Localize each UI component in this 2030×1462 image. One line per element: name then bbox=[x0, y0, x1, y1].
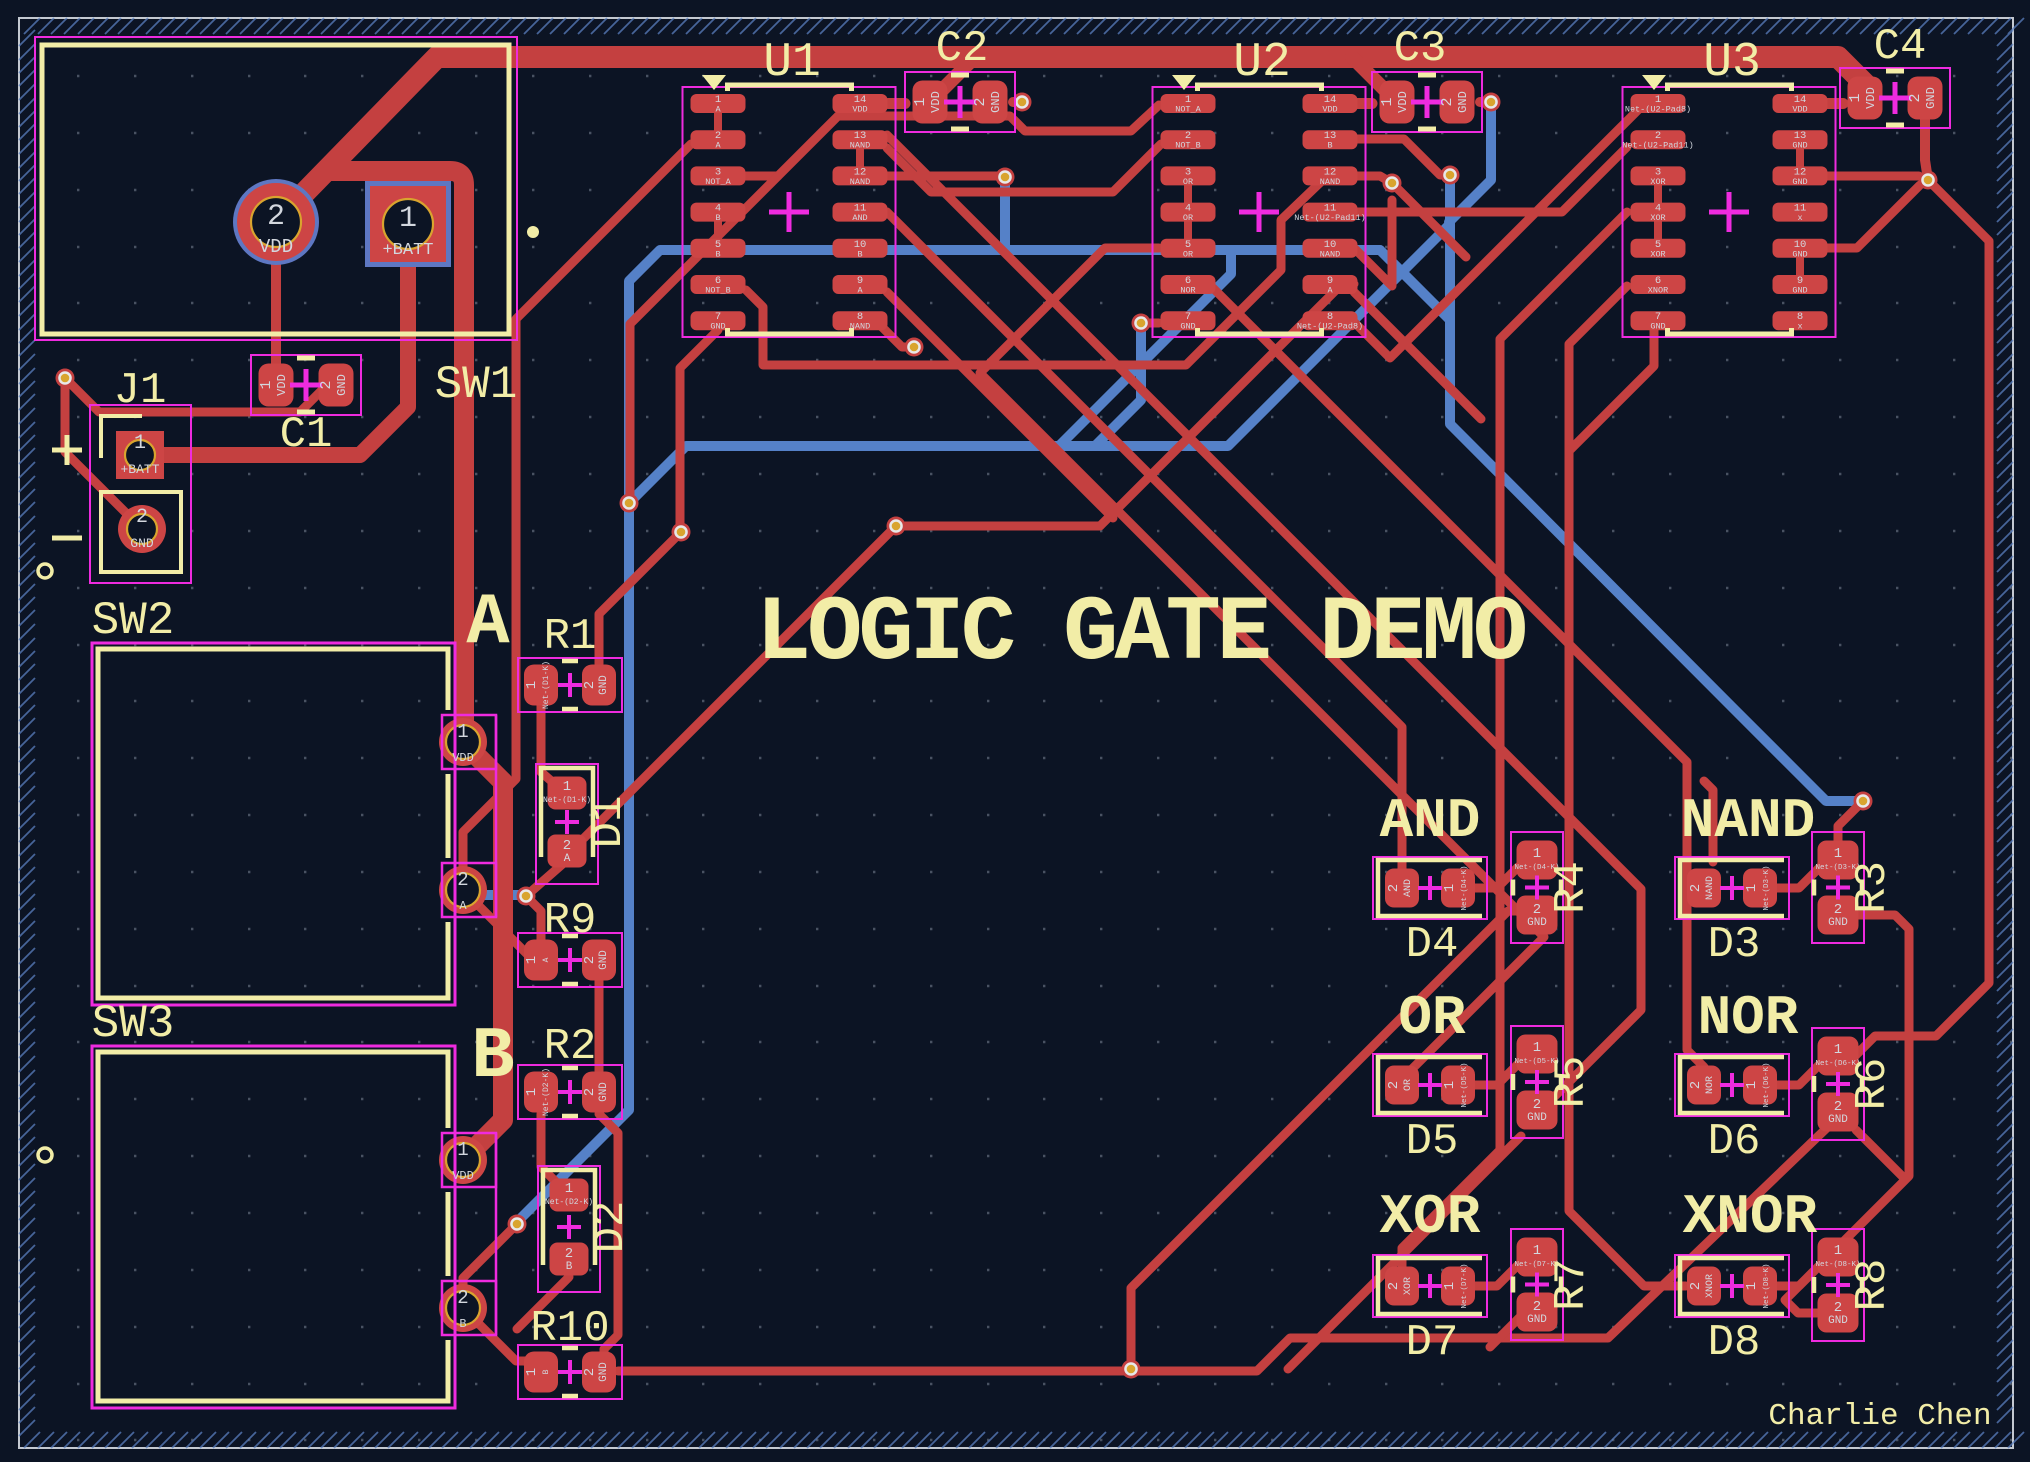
svg-text:VDD: VDD bbox=[1322, 105, 1337, 115]
svg-text:GND: GND bbox=[1527, 1112, 1547, 1124]
svg-text:2: 2 bbox=[267, 200, 285, 234]
svg-text:1: 1 bbox=[1744, 884, 1760, 892]
svg-text:2: 2 bbox=[1386, 1282, 1402, 1290]
svg-text:D6: D6 bbox=[1708, 1117, 1761, 1167]
svg-text:R10: R10 bbox=[530, 1304, 609, 1354]
svg-text:NAND: NAND bbox=[1681, 789, 1815, 853]
svg-text:1: 1 bbox=[1442, 1282, 1458, 1290]
svg-text:Net-(U2-Pad11): Net-(U2-Pad11) bbox=[1622, 141, 1693, 151]
svg-text:1: 1 bbox=[565, 1181, 573, 1197]
svg-text:VDD: VDD bbox=[259, 236, 293, 258]
svg-text:GND: GND bbox=[1792, 286, 1807, 296]
svg-text:2: 2 bbox=[1386, 1081, 1402, 1089]
svg-text:D3: D3 bbox=[1708, 920, 1761, 970]
svg-text:B: B bbox=[471, 1016, 514, 1098]
svg-text:B: B bbox=[566, 1261, 573, 1273]
svg-text:Net-(U2-Pad8): Net-(U2-Pad8) bbox=[1297, 322, 1363, 332]
svg-text:2: 2 bbox=[1834, 902, 1842, 918]
svg-text:1: 1 bbox=[912, 97, 929, 106]
svg-text:XOR: XOR bbox=[1403, 1277, 1414, 1295]
svg-text:C3: C3 bbox=[1394, 24, 1447, 74]
svg-text:XOR: XOR bbox=[1650, 177, 1665, 187]
svg-text:GND: GND bbox=[598, 675, 610, 695]
svg-text:NAND: NAND bbox=[1320, 177, 1340, 187]
svg-text:D8: D8 bbox=[1708, 1318, 1761, 1368]
svg-text:XOR: XOR bbox=[1650, 213, 1665, 223]
svg-text:NAND: NAND bbox=[850, 322, 870, 332]
svg-text:VDD: VDD bbox=[452, 1169, 474, 1183]
svg-text:2: 2 bbox=[1688, 884, 1704, 892]
svg-text:2: 2 bbox=[457, 1287, 468, 1309]
svg-text:1: 1 bbox=[1834, 846, 1842, 862]
svg-text:2: 2 bbox=[1834, 1099, 1842, 1115]
svg-text:1: 1 bbox=[134, 432, 146, 455]
svg-text:VDD: VDD bbox=[852, 105, 867, 115]
svg-text:2: 2 bbox=[1533, 1299, 1541, 1315]
svg-text:1: 1 bbox=[524, 1088, 540, 1096]
svg-text:VDD: VDD bbox=[1792, 105, 1807, 115]
svg-text:GND: GND bbox=[710, 322, 725, 332]
svg-text:D4: D4 bbox=[1406, 920, 1459, 970]
svg-text:2: 2 bbox=[582, 681, 598, 689]
svg-text:2: 2 bbox=[457, 869, 468, 891]
svg-text:GND: GND bbox=[1828, 917, 1848, 929]
svg-text:1: 1 bbox=[1533, 1040, 1541, 1056]
svg-text:NOT_A: NOT_A bbox=[705, 177, 731, 187]
svg-text:2: 2 bbox=[1533, 1097, 1541, 1113]
svg-text:OR: OR bbox=[1183, 249, 1193, 259]
svg-text:GND: GND bbox=[1456, 91, 1470, 113]
svg-text:R5: R5 bbox=[1547, 1056, 1597, 1109]
svg-text:Net-(D3-K): Net-(D3-K) bbox=[1763, 865, 1771, 910]
svg-text:1: 1 bbox=[524, 681, 540, 689]
svg-text:2: 2 bbox=[565, 1246, 573, 1262]
svg-text:R4: R4 bbox=[1547, 861, 1597, 914]
svg-text:VDD: VDD bbox=[1396, 91, 1410, 113]
svg-text:U2: U2 bbox=[1233, 36, 1291, 90]
svg-text:OR: OR bbox=[1403, 1079, 1414, 1091]
svg-text:1: 1 bbox=[258, 380, 275, 389]
svg-text:Net-(D6-K): Net-(D6-K) bbox=[1763, 1062, 1771, 1107]
svg-text:XNOR: XNOR bbox=[1683, 1185, 1818, 1249]
svg-text:2: 2 bbox=[582, 1088, 598, 1096]
svg-text:GND: GND bbox=[1527, 1314, 1547, 1326]
svg-text:VDD: VDD bbox=[452, 751, 474, 765]
svg-text:SW1: SW1 bbox=[435, 359, 518, 411]
svg-text:B: B bbox=[715, 249, 720, 259]
svg-text:+BATT: +BATT bbox=[382, 241, 433, 260]
svg-text:NOR: NOR bbox=[1705, 1076, 1716, 1094]
svg-text:Net-(D5-K): Net-(D5-K) bbox=[1461, 1062, 1469, 1107]
svg-text:2: 2 bbox=[1439, 97, 1456, 106]
svg-text:1: 1 bbox=[1533, 846, 1541, 862]
svg-text:GND: GND bbox=[598, 1362, 610, 1382]
svg-text:2: 2 bbox=[318, 380, 335, 389]
svg-text:GND: GND bbox=[335, 374, 349, 396]
svg-text:R6: R6 bbox=[1848, 1058, 1898, 1111]
svg-text:x: x bbox=[1797, 213, 1802, 223]
svg-text:OR: OR bbox=[1398, 986, 1466, 1050]
svg-text:+BATT: +BATT bbox=[120, 462, 159, 477]
svg-text:GND: GND bbox=[1650, 322, 1665, 332]
svg-text:A: A bbox=[564, 853, 571, 865]
svg-text:1: 1 bbox=[1379, 97, 1396, 106]
svg-text:XNOR: XNOR bbox=[1705, 1274, 1716, 1298]
svg-text:LOGIC GATE DEMO: LOGIC GATE DEMO bbox=[756, 581, 1525, 686]
svg-text:J1: J1 bbox=[114, 366, 167, 416]
svg-text:A: A bbox=[715, 141, 721, 151]
svg-text:VDD: VDD bbox=[929, 91, 943, 113]
svg-text:GND: GND bbox=[989, 91, 1003, 113]
svg-text:U3: U3 bbox=[1703, 36, 1761, 90]
svg-text:1: 1 bbox=[524, 956, 540, 964]
svg-text:NAND: NAND bbox=[1705, 876, 1716, 900]
svg-text:SW2: SW2 bbox=[92, 595, 175, 647]
svg-text:C4: C4 bbox=[1874, 22, 1927, 72]
svg-text:Net-(D7-K): Net-(D7-K) bbox=[1461, 1263, 1469, 1308]
svg-text:1: 1 bbox=[457, 1139, 468, 1161]
svg-text:GND: GND bbox=[1924, 87, 1938, 109]
svg-text:B: B bbox=[542, 1369, 551, 1374]
svg-text:NOT_B: NOT_B bbox=[1175, 141, 1201, 151]
svg-text:R1: R1 bbox=[544, 612, 597, 662]
svg-text:GND: GND bbox=[598, 950, 610, 970]
svg-text:U1: U1 bbox=[763, 36, 821, 90]
svg-text:Net-(U2-Pad8): Net-(U2-Pad8) bbox=[1625, 105, 1691, 115]
svg-text:NOT_A: NOT_A bbox=[1175, 105, 1201, 115]
svg-text:D5: D5 bbox=[1406, 1117, 1459, 1167]
svg-text:R2: R2 bbox=[544, 1022, 597, 1072]
svg-text:VDD: VDD bbox=[275, 374, 289, 396]
svg-text:1: 1 bbox=[457, 721, 468, 743]
svg-text:OR: OR bbox=[1183, 177, 1193, 187]
svg-text:GND: GND bbox=[598, 1082, 610, 1102]
svg-text:1: 1 bbox=[399, 202, 417, 236]
svg-text:GND: GND bbox=[1792, 249, 1807, 259]
svg-text:A: A bbox=[857, 286, 863, 296]
svg-text:NAND: NAND bbox=[850, 141, 870, 151]
svg-text:2: 2 bbox=[582, 956, 598, 964]
svg-text:AND: AND bbox=[1380, 789, 1481, 853]
svg-text:GND: GND bbox=[1527, 917, 1547, 929]
svg-text:2: 2 bbox=[1834, 1300, 1842, 1316]
svg-text:R7: R7 bbox=[1547, 1258, 1597, 1311]
svg-text:XNOR: XNOR bbox=[1648, 286, 1668, 296]
svg-text:GND: GND bbox=[1828, 1114, 1848, 1126]
svg-text:B: B bbox=[715, 213, 720, 223]
svg-text:NOR: NOR bbox=[1180, 286, 1195, 296]
svg-text:GND: GND bbox=[1792, 177, 1807, 187]
svg-text:2: 2 bbox=[582, 1368, 598, 1376]
svg-text:NAND: NAND bbox=[850, 177, 870, 187]
svg-text:C1: C1 bbox=[280, 410, 333, 460]
svg-text:GND: GND bbox=[1828, 1315, 1848, 1327]
svg-text:A: A bbox=[715, 105, 721, 115]
svg-text:R8: R8 bbox=[1848, 1259, 1898, 1312]
svg-text:2: 2 bbox=[1907, 93, 1924, 102]
svg-text:NAND: NAND bbox=[1320, 249, 1340, 259]
svg-text:B: B bbox=[857, 249, 862, 259]
svg-text:1: 1 bbox=[1834, 1042, 1842, 1058]
svg-text:D2: D2 bbox=[586, 1201, 636, 1254]
svg-text:2: 2 bbox=[1386, 884, 1402, 892]
svg-text:1: 1 bbox=[563, 779, 571, 795]
svg-text:SW3: SW3 bbox=[92, 998, 175, 1050]
svg-text:GND: GND bbox=[1792, 141, 1807, 151]
svg-text:NOR: NOR bbox=[1698, 986, 1799, 1050]
svg-text:A: A bbox=[466, 582, 510, 664]
svg-text:1: 1 bbox=[1442, 884, 1458, 892]
svg-text:XOR: XOR bbox=[1650, 249, 1665, 259]
svg-text:GND: GND bbox=[1180, 322, 1195, 332]
svg-text:Net-(D4-K): Net-(D4-K) bbox=[1461, 865, 1469, 910]
svg-text:Net-(U2-Pad11): Net-(U2-Pad11) bbox=[1294, 213, 1365, 223]
svg-text:1: 1 bbox=[1744, 1282, 1760, 1290]
svg-text:A: A bbox=[542, 957, 551, 962]
svg-text:C2: C2 bbox=[936, 24, 989, 74]
svg-text:D1: D1 bbox=[584, 796, 634, 849]
svg-text:B: B bbox=[1327, 141, 1332, 151]
svg-text:XOR: XOR bbox=[1380, 1185, 1481, 1249]
svg-text:2: 2 bbox=[1688, 1282, 1704, 1290]
svg-text:2: 2 bbox=[1688, 1081, 1704, 1089]
svg-text:VDD: VDD bbox=[1864, 87, 1878, 109]
svg-text:D7: D7 bbox=[1406, 1318, 1459, 1368]
svg-text:1: 1 bbox=[1834, 1243, 1842, 1259]
svg-text:x: x bbox=[1797, 322, 1802, 332]
svg-text:Net-(D8-K): Net-(D8-K) bbox=[1763, 1263, 1771, 1308]
svg-text:NOT_B: NOT_B bbox=[705, 286, 731, 296]
svg-text:GND: GND bbox=[130, 536, 154, 551]
svg-text:2: 2 bbox=[136, 506, 148, 529]
svg-text:2: 2 bbox=[563, 838, 571, 854]
svg-text:1: 1 bbox=[524, 1368, 540, 1376]
svg-text:1: 1 bbox=[1847, 93, 1864, 102]
svg-text:AND: AND bbox=[1403, 879, 1414, 897]
svg-text:1: 1 bbox=[1744, 1081, 1760, 1089]
svg-text:A: A bbox=[459, 899, 467, 913]
svg-text:R9: R9 bbox=[544, 896, 597, 946]
svg-text:R3: R3 bbox=[1848, 861, 1898, 914]
svg-text:Net-(D2-K): Net-(D2-K) bbox=[542, 1068, 551, 1116]
svg-text:1: 1 bbox=[1442, 1081, 1458, 1089]
svg-text:B: B bbox=[459, 1317, 466, 1331]
svg-text:1: 1 bbox=[1533, 1243, 1541, 1259]
svg-text:Charlie Chen: Charlie Chen bbox=[1768, 1399, 1991, 1434]
svg-text:2: 2 bbox=[1533, 902, 1541, 918]
svg-text:A: A bbox=[1327, 286, 1333, 296]
svg-text:2: 2 bbox=[972, 97, 989, 106]
svg-text:AND: AND bbox=[852, 213, 867, 223]
svg-text:OR: OR bbox=[1183, 213, 1193, 223]
svg-text:Net-(D1-K): Net-(D1-K) bbox=[542, 661, 551, 709]
